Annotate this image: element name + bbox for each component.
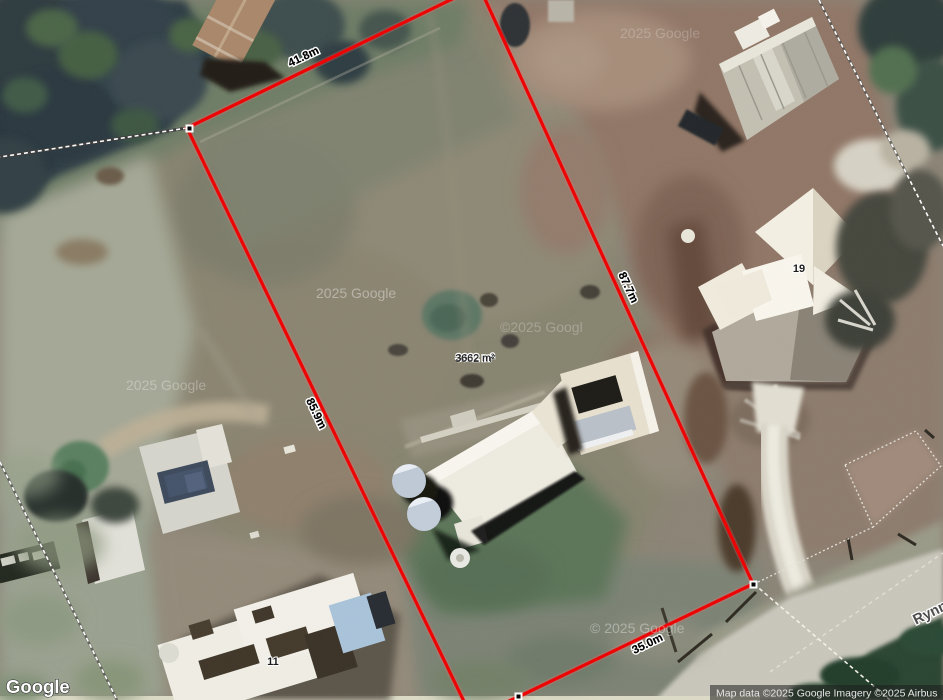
svg-text:Map data ©2025 Google Imagery: Map data ©2025 Google Imagery ©2025 Airb… (716, 688, 938, 700)
svg-text:Google: Google (6, 676, 70, 697)
